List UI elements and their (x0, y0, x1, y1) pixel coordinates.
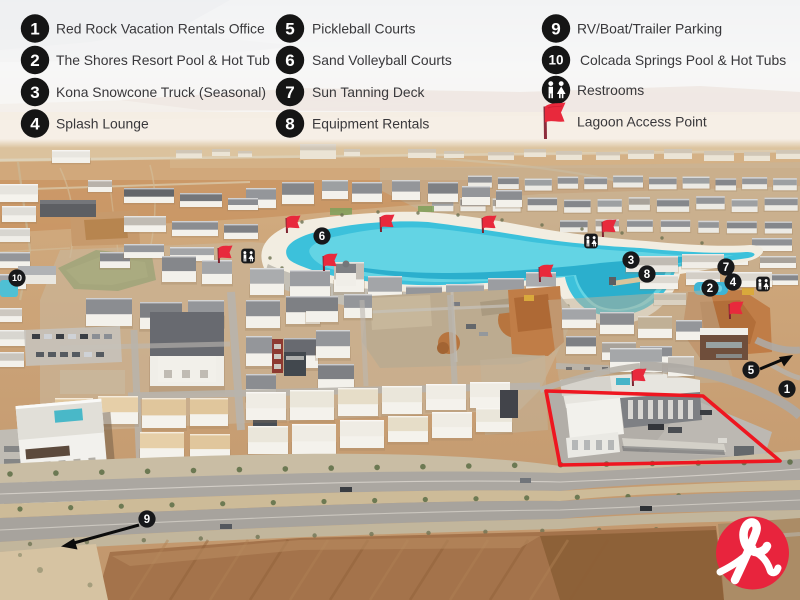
svg-text:Red Rock Vacation Rentals Offi: Red Rock Vacation Rentals Office (56, 21, 265, 37)
svg-text:10: 10 (12, 273, 22, 283)
svg-text:6: 6 (285, 51, 294, 70)
svg-text:Pickleball Courts: Pickleball Courts (312, 21, 416, 37)
svg-text:7: 7 (723, 262, 729, 274)
svg-text:Lagoon Access Point: Lagoon Access Point (577, 114, 707, 130)
svg-text:1: 1 (30, 19, 39, 38)
svg-text:Sun Tanning Deck: Sun Tanning Deck (312, 84, 425, 100)
svg-text:8: 8 (285, 114, 294, 133)
svg-text:Sand Volleyball Courts: Sand Volleyball Courts (312, 52, 452, 68)
svg-text:Splash Lounge: Splash Lounge (56, 116, 149, 132)
svg-text:Restrooms: Restrooms (577, 82, 644, 98)
svg-text:5: 5 (748, 365, 755, 377)
svg-text:9: 9 (144, 514, 150, 526)
svg-text:Colcada Springs Pool & Hot Tub: Colcada Springs Pool & Hot Tubs (580, 52, 786, 68)
svg-text:8: 8 (644, 269, 651, 281)
svg-text:4: 4 (30, 114, 40, 133)
svg-text:5: 5 (285, 19, 294, 38)
svg-text:Kona Snowcone Truck (Seasonal): Kona Snowcone Truck (Seasonal) (56, 84, 266, 100)
svg-text:10: 10 (548, 53, 563, 68)
svg-text:7: 7 (285, 83, 294, 102)
svg-text:6: 6 (319, 231, 325, 243)
svg-text:3: 3 (30, 83, 39, 102)
svg-text:9: 9 (551, 19, 560, 38)
svg-text:Equipment Rentals: Equipment Rentals (312, 116, 429, 132)
svg-text:1: 1 (784, 384, 791, 396)
svg-text:3: 3 (628, 255, 634, 267)
svg-text:2: 2 (707, 283, 713, 295)
svg-text:RV/Boat/Trailer Parking: RV/Boat/Trailer Parking (577, 21, 722, 37)
svg-text:The Shores Resort Pool & Hot T: The Shores Resort Pool & Hot Tub (56, 52, 270, 68)
svg-text:2: 2 (30, 51, 39, 70)
svg-text:4: 4 (730, 277, 737, 289)
